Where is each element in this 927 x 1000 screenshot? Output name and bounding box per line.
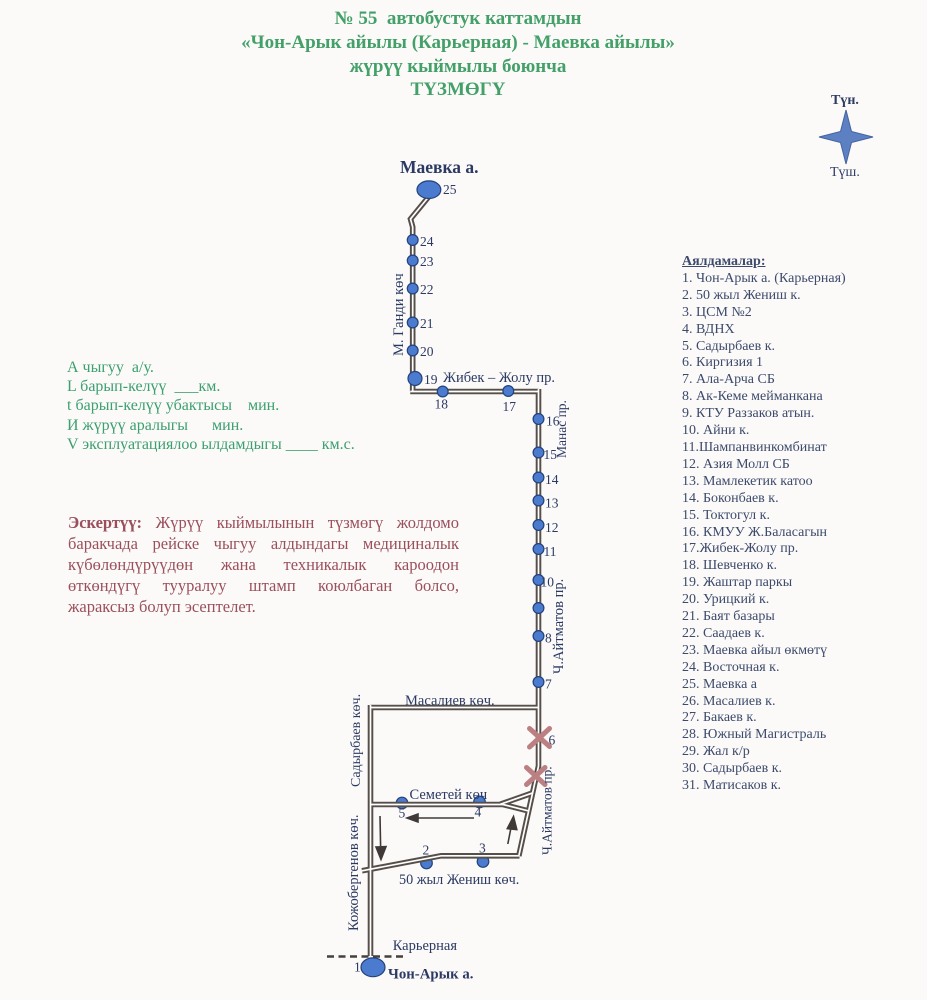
svg-text:3: 3 <box>479 841 486 856</box>
svg-text:25: 25 <box>443 182 457 197</box>
svg-text:20: 20 <box>420 344 434 359</box>
svg-text:Масалиев көч.: Масалиев көч. <box>405 693 495 709</box>
svg-text:Чон-Арык а.: Чон-Арык а. <box>388 967 474 983</box>
svg-text:24: 24 <box>420 234 434 249</box>
svg-text:7: 7 <box>545 677 552 692</box>
svg-text:Семетей көч: Семетей көч <box>410 787 488 803</box>
svg-text:23: 23 <box>420 254 434 269</box>
svg-text:Карьерная: Карьерная <box>393 938 458 954</box>
svg-text:Ч.Айтматов пр.: Ч.Айтматов пр. <box>540 766 555 855</box>
svg-text:2: 2 <box>423 843 430 858</box>
svg-text:5: 5 <box>399 806 406 821</box>
svg-text:Садырбаев көч.: Садырбаев көч. <box>349 694 364 787</box>
svg-text:Кожобергенов көч.: Кожобергенов көч. <box>346 814 362 931</box>
svg-text:4: 4 <box>475 805 482 820</box>
svg-text:Жибек – Жолу пр.: Жибек – Жолу пр. <box>443 370 555 386</box>
svg-text:50 жыл Жениш көч.: 50 жыл Жениш көч. <box>399 872 519 888</box>
svg-text:Түш.: Түш. <box>830 165 860 180</box>
svg-text:М. Ганди көч: М. Ганди көч <box>391 273 407 356</box>
svg-text:17: 17 <box>503 399 517 414</box>
svg-text:1: 1 <box>354 960 361 975</box>
svg-text:11: 11 <box>544 544 557 559</box>
svg-text:18: 18 <box>435 397 449 412</box>
svg-text:21: 21 <box>420 316 434 331</box>
svg-text:13: 13 <box>545 496 559 511</box>
svg-text:12: 12 <box>545 520 559 535</box>
svg-text:6: 6 <box>549 733 556 748</box>
svg-text:Манас пр.: Манас пр. <box>554 400 569 458</box>
svg-text:Түн.: Түн. <box>831 93 859 108</box>
svg-text:Ч.Айтматов пр.: Ч.Айтматов пр. <box>551 579 567 674</box>
svg-text:Маевка а.: Маевка а. <box>400 157 479 177</box>
svg-text:22: 22 <box>420 282 434 297</box>
svg-text:14: 14 <box>545 472 559 487</box>
svg-text:19: 19 <box>424 372 438 387</box>
